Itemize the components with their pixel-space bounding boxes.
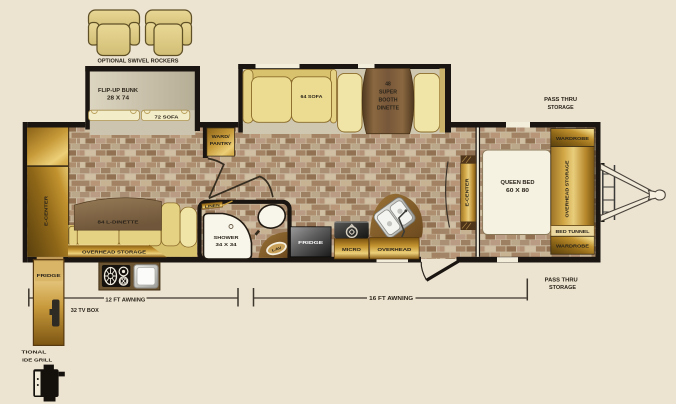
svg-text:FRIDGE: FRIDGE <box>298 240 323 245</box>
svg-text:OVERHEAD STORAGE: OVERHEAD STORAGE <box>82 249 147 255</box>
svg-text:IDE GRILL: IDE GRILL <box>22 357 52 363</box>
svg-text:32 TV BOX: 32 TV BOX <box>71 308 100 314</box>
svg-text:OVERHEAD: OVERHEAD <box>377 247 412 253</box>
svg-text:PASS THRU: PASS THRU <box>544 97 577 103</box>
svg-text:PASS THRU: PASS THRU <box>545 278 578 284</box>
svg-text:72 SOFA: 72 SOFA <box>155 114 180 120</box>
svg-text:SHOWER: SHOWER <box>214 235 240 240</box>
svg-text:PANTRY: PANTRY <box>210 141 232 146</box>
svg-text:STORAGE: STORAGE <box>549 285 577 291</box>
svg-text:28 X 74: 28 X 74 <box>107 96 129 102</box>
svg-text:MICRO: MICRO <box>342 247 361 253</box>
svg-text:OVERHEAD STORAGE: OVERHEAD STORAGE <box>565 160 570 217</box>
svg-text:QUEEN BED: QUEEN BED <box>501 180 535 186</box>
svg-text:48: 48 <box>385 82 391 88</box>
svg-text:12 FT AWNING: 12 FT AWNING <box>105 297 145 303</box>
svg-text:E-CENTER: E-CENTER <box>44 195 49 226</box>
svg-text:BOOTH: BOOTH <box>379 98 398 104</box>
svg-text:FRIDGE: FRIDGE <box>37 273 61 278</box>
svg-text:E-CENTER: E-CENTER <box>465 179 470 207</box>
svg-text:TIONAL: TIONAL <box>21 350 46 356</box>
svg-text:34 X 34: 34 X 34 <box>216 242 238 247</box>
svg-text:SUPER: SUPER <box>379 90 397 96</box>
svg-text:16 FT AWNING: 16 FT AWNING <box>369 296 413 302</box>
svg-text:FLIP-UP BUNK: FLIP-UP BUNK <box>98 88 138 94</box>
svg-text:84 L-DINETTE: 84 L-DINETTE <box>98 220 139 225</box>
svg-text:BED TUNNEL: BED TUNNEL <box>556 229 590 234</box>
svg-text:WARD/: WARD/ <box>212 134 231 139</box>
svg-text:STORAGE: STORAGE <box>548 105 575 111</box>
svg-text:OPTIONAL SWIVEL ROCKERS: OPTIONAL SWIVEL ROCKERS <box>98 59 180 65</box>
svg-text:DINETTE: DINETTE <box>377 106 400 112</box>
svg-text:60 X 80: 60 X 80 <box>506 188 529 194</box>
svg-text:WARDROBE: WARDROBE <box>556 244 589 249</box>
svg-text:WARDROBE: WARDROBE <box>556 136 589 141</box>
svg-text:64 SOFA: 64 SOFA <box>301 94 324 99</box>
